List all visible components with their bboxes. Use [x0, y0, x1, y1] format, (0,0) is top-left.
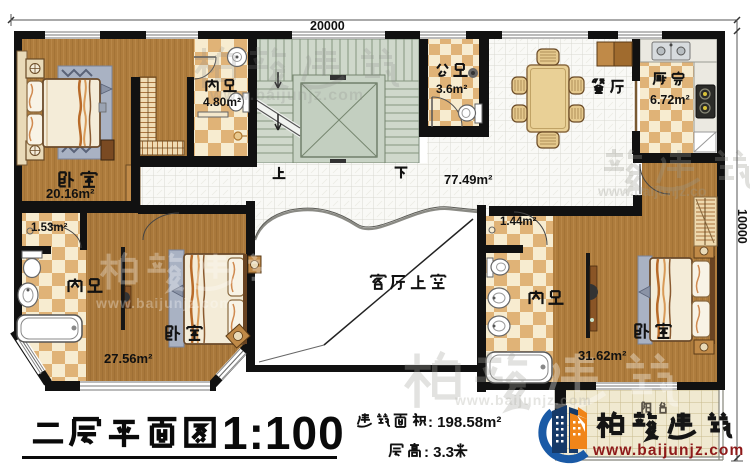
- svg-text:10000: 10000: [735, 209, 749, 244]
- svg-text:1.53m²: 1.53m²: [31, 222, 68, 234]
- svg-text:3.6m²: 3.6m²: [436, 82, 467, 96]
- svg-text:www.baijunjz.co: www.baijunjz.co: [597, 183, 706, 199]
- svg-text:: 3.3: : 3.3: [424, 444, 454, 461]
- svg-text:: 198.58m²: : 198.58m²: [428, 414, 501, 431]
- svg-text:www.baijunjz.com: www.baijunjz.com: [454, 392, 592, 408]
- svg-text:www.baijunjz.com: www.baijunjz.com: [592, 442, 744, 459]
- svg-text:1.44m²: 1.44m²: [500, 216, 537, 228]
- svg-text:1:100: 1:100: [222, 407, 345, 459]
- svg-text:31.62m²: 31.62m²: [578, 348, 627, 363]
- svg-text:20.16m²: 20.16m²: [46, 186, 95, 201]
- svg-text:4.80m²: 4.80m²: [203, 95, 241, 109]
- svg-text:77.49m²: 77.49m²: [444, 172, 493, 187]
- svg-text:20000: 20000: [310, 19, 345, 33]
- svg-text:www.baijunjz.com: www.baijunjz.com: [95, 295, 233, 311]
- svg-text:27.56m²: 27.56m²: [104, 351, 153, 366]
- svg-text:6.72m²: 6.72m²: [650, 93, 690, 107]
